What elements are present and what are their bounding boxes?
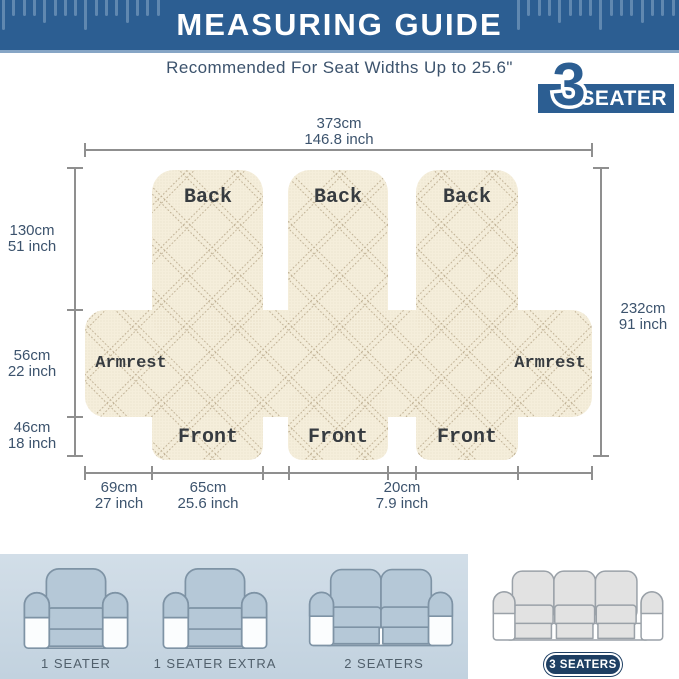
armrest-label: Armrest: [76, 354, 186, 373]
measuring-guide-infographic: MEASURING GUIDE Recommended For Seat Wid…: [0, 0, 679, 679]
dim-back-height: 130cm 51 inch: [0, 223, 64, 255]
dim-armrest-height: 56cm 22 inch: [0, 348, 64, 380]
front-flap-label: Front: [407, 426, 527, 449]
dim-total-width: 373cm 146.8 inch: [279, 116, 399, 148]
bottom-dimension-line: [85, 472, 593, 474]
dim-total-height: 232cm 91 inch: [608, 301, 678, 333]
left-dimension-line: [74, 168, 76, 457]
back-panel-label: Back: [148, 186, 268, 209]
dim-seat-width: 65cm 25.6 inch: [163, 480, 253, 512]
page-title: MEASURING GUIDE: [0, 0, 679, 50]
front-flap-label: Front: [148, 426, 268, 449]
option-3-seaters-badge: 3 SEATERS: [544, 653, 622, 676]
option-2-seaters: 2 SEATERS: [314, 656, 454, 671]
recliner-1-seater-extra-icon: [159, 566, 271, 652]
right-dimension-line: [600, 168, 602, 457]
recliner-1-seater-icon: [20, 566, 132, 652]
sofa-3-seaters-icon: [490, 562, 666, 650]
dim-front-height: 46cm 18 inch: [0, 420, 64, 452]
header-band: MEASURING GUIDE: [0, 0, 679, 53]
armrest-label: Armrest: [495, 354, 605, 373]
slipcover-texture: [85, 170, 592, 460]
seater-badge-number: 3 3: [534, 52, 604, 118]
option-1-seater-extra: 1 SEATER EXTRA: [145, 656, 285, 671]
back-panel-label: Back: [407, 186, 527, 209]
front-flap-label: Front: [278, 426, 398, 449]
loveseat-2-seaters-icon: [306, 564, 456, 652]
option-1-seater: 1 SEATER: [6, 656, 146, 671]
top-dimension-line: [85, 149, 593, 151]
dim-armrest-width: 69cm 27 inch: [74, 480, 164, 512]
dim-gap-width: 20cm 7.9 inch: [357, 480, 447, 512]
slipcover-diagram: [85, 170, 592, 460]
back-panel-label: Back: [278, 186, 398, 209]
